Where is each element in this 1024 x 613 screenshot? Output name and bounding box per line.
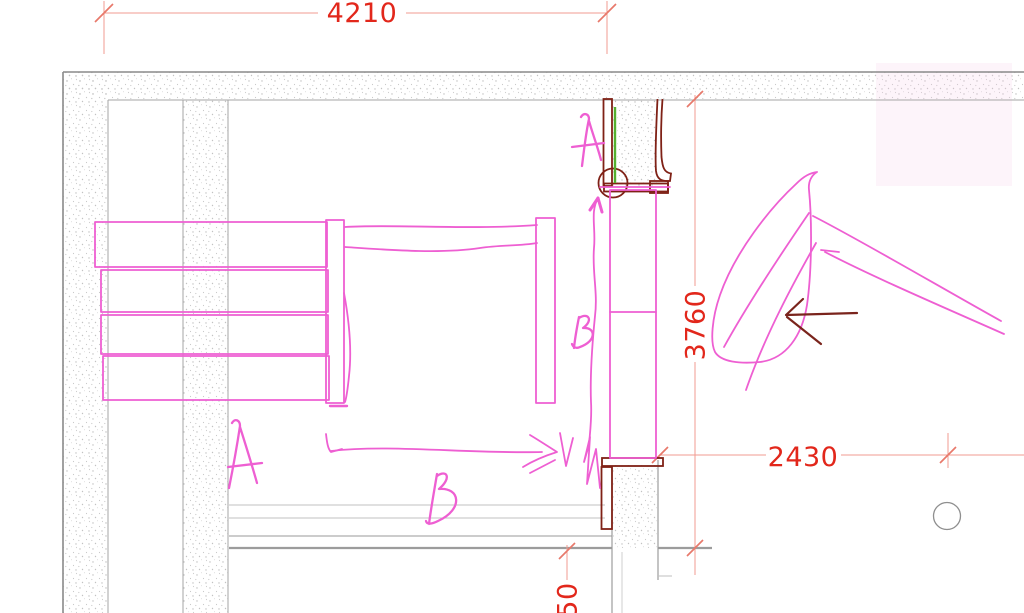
sketch-wedge-line-2: [825, 252, 1004, 334]
sketch-door-leaf: [610, 190, 656, 458]
sketch-panel-right: [536, 218, 555, 403]
dim-bottom-offset: 50: [552, 543, 583, 613]
bottom-wall-fill: [613, 465, 658, 548]
sketch-blob-inner-2: [746, 243, 816, 390]
dim-top-width: 4210: [95, 0, 616, 54]
dim-text-bottom: 50: [552, 582, 583, 613]
sketch-wedge-line-1: [813, 216, 1001, 321]
sketch-rod-top: [345, 225, 537, 227]
sketch-wavy-line: [589, 198, 598, 445]
dim-text-top: 4210: [327, 0, 398, 29]
sketch-letter-b-top: [572, 316, 593, 348]
dim-right-width: 2430: [652, 433, 1024, 473]
door-head-wall-fill: [613, 100, 657, 188]
grid-bubble-circle: [934, 503, 961, 530]
bottom-door-jamb: [602, 467, 613, 529]
sketch-letter-a-top: [572, 114, 604, 166]
sketch-end-squiggle: [584, 437, 600, 488]
sketch-arrow-shaft: [331, 448, 542, 452]
dim-text-right: 2430: [768, 442, 839, 473]
walls: [63, 63, 1024, 613]
sketch-panel-curve: [344, 293, 350, 402]
top-door-right-jamb: [656, 99, 671, 181]
sketch-layer: [95, 114, 1004, 524]
cad-drawing-viewport: 4210 3760 2430 50: [0, 0, 1024, 613]
floorplan-canvas: 4210 3760 2430 50: [0, 0, 1024, 613]
sketch-letter-a-bottom: [228, 420, 262, 488]
sketch-end-squiggle-2: [560, 433, 573, 466]
faint-highlight-region: [876, 63, 1012, 186]
dim-room-depth: 3760: [680, 91, 711, 575]
sketch-rod-bottom: [345, 243, 537, 251]
sketch-arrow-right-head: [523, 435, 557, 473]
sketch-letter-b-bottom: [426, 474, 456, 524]
sketch-wedge-connector: [821, 250, 839, 252]
dim-text-depth: 3760: [680, 290, 711, 361]
sketch-blob-outline: [712, 172, 817, 363]
